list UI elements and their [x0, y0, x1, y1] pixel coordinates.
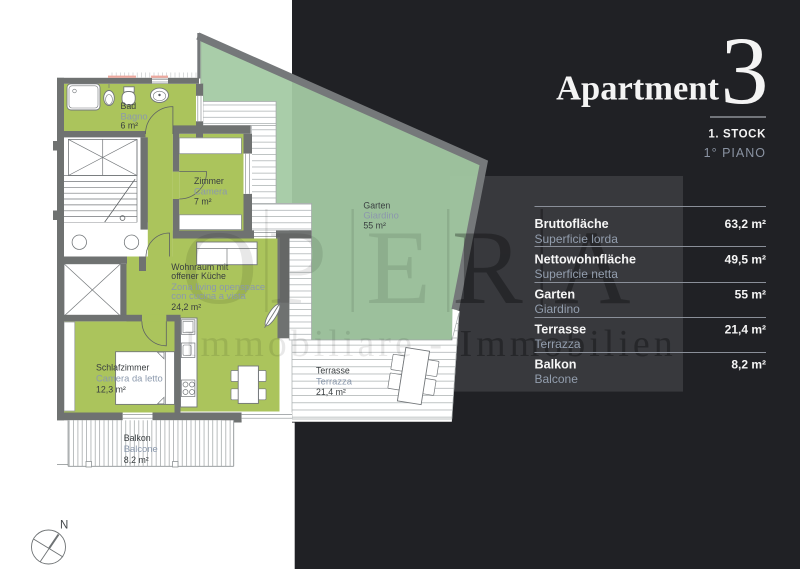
- svg-text:Superficie netta: Superficie netta: [535, 267, 619, 281]
- svg-text:Terrasse: Terrasse: [535, 323, 587, 337]
- svg-text:Balcone: Balcone: [535, 372, 579, 386]
- svg-text:1° PIANO: 1° PIANO: [704, 146, 766, 160]
- svg-text:8,2 m²: 8,2 m²: [124, 455, 149, 465]
- svg-text:21,4 m²: 21,4 m²: [316, 387, 346, 397]
- svg-text:Terrasse: Terrasse: [316, 366, 350, 376]
- svg-text:Garten: Garten: [535, 288, 576, 302]
- svg-text:Camera da letto: Camera da letto: [96, 373, 163, 384]
- svg-text:offener Küche: offener Küche: [171, 271, 226, 281]
- svg-text:con cucina a vista: con cucina a vista: [171, 290, 246, 301]
- svg-text:55 m²: 55 m²: [363, 220, 386, 230]
- svg-text:Nettowohnfläche: Nettowohnfläche: [535, 253, 636, 267]
- svg-text:N: N: [60, 520, 68, 532]
- svg-text:3: 3: [721, 17, 769, 124]
- svg-text:Bad: Bad: [121, 101, 137, 111]
- svg-text:Superficie lorda: Superficie lorda: [535, 232, 619, 246]
- svg-text:24,2 m²: 24,2 m²: [171, 302, 201, 312]
- svg-text:Terrazza: Terrazza: [316, 375, 353, 386]
- svg-text:Apartment: Apartment: [556, 70, 719, 108]
- svg-text:63,2 m²: 63,2 m²: [725, 217, 766, 231]
- svg-text:55 m²: 55 m²: [735, 288, 766, 302]
- svg-text:49,5 m²: 49,5 m²: [725, 253, 766, 267]
- svg-text:21,4 m²: 21,4 m²: [725, 323, 766, 337]
- svg-text:7 m²: 7 m²: [194, 197, 212, 207]
- svg-text:Giardino: Giardino: [363, 209, 398, 220]
- svg-text:Schlafzimmer: Schlafzimmer: [96, 363, 149, 373]
- svg-text:Zimmer: Zimmer: [194, 176, 224, 186]
- svg-text:8,2 m²: 8,2 m²: [731, 358, 766, 372]
- svg-text:P: P: [268, 209, 327, 326]
- svg-text:1. STOCK: 1. STOCK: [708, 129, 766, 141]
- svg-text:Balcone: Balcone: [124, 443, 158, 454]
- svg-text:12,3 m²: 12,3 m²: [96, 385, 126, 395]
- svg-text:Bruttofläche: Bruttofläche: [535, 217, 609, 231]
- svg-text:6 m²: 6 m²: [121, 121, 139, 131]
- svg-text:Giardino: Giardino: [535, 302, 581, 316]
- svg-text:R: R: [452, 209, 523, 326]
- svg-text:Camera: Camera: [194, 186, 228, 197]
- svg-text:Balkon: Balkon: [535, 358, 577, 372]
- svg-text:Balkon: Balkon: [124, 433, 151, 443]
- svg-text:Terrazza: Terrazza: [535, 337, 581, 351]
